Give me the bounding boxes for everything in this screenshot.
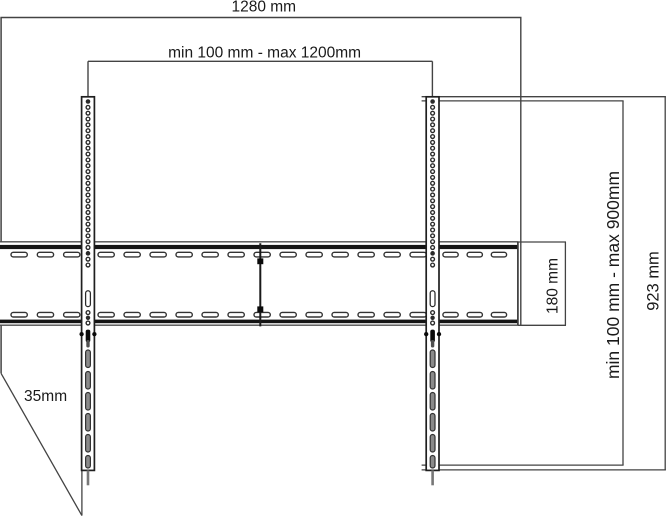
svg-text:1280 mm: 1280 mm — [231, 0, 296, 15]
svg-text:35mm: 35mm — [24, 388, 67, 405]
svg-text:923 mm: 923 mm — [645, 251, 663, 311]
svg-text:180 mm: 180 mm — [545, 258, 562, 314]
svg-text:min 100 mm - max 1200mm: min 100 mm - max 1200mm — [168, 45, 361, 62]
svg-text:min 100 mm - max 900mm: min 100 mm - max 900mm — [603, 171, 623, 379]
